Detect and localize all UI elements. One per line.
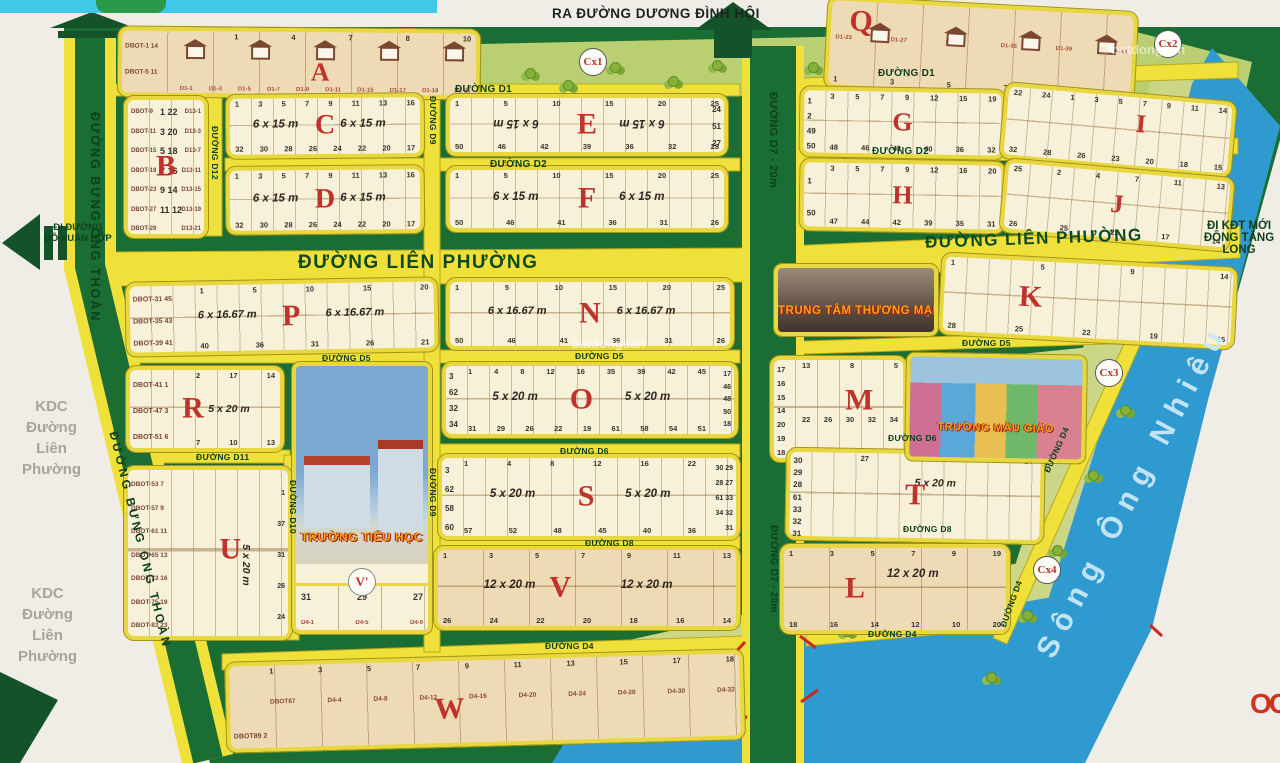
road-label-d2: ĐƯỜNG D2 — [872, 146, 929, 157]
block-U-right-numbers: 1 37 31 26 24 — [277, 478, 285, 633]
block-U-dim: 5 x 20 m — [240, 544, 252, 585]
tree-icon — [525, 68, 536, 79]
block-Vp-letter: V' — [348, 568, 376, 596]
house-icon — [251, 46, 270, 60]
road-label-d7: ĐƯỜNG D7 - 20m — [768, 525, 779, 613]
tree-icon — [1022, 610, 1033, 621]
block-E-dim: 6 x 15 m — [619, 117, 664, 129]
block-A: DBOT-1 14 DBOT-5 11 1 4 7 8 10 D1-1 D1-3… — [118, 26, 481, 99]
house-icon — [870, 28, 890, 43]
block-E-numbers-bottom: 50 46 42 39 36 32 28 — [455, 142, 719, 151]
kdc-label: KDC Đường Liên Phường — [22, 396, 81, 480]
block-D-dim: 6 x 15 m — [253, 192, 299, 204]
park-cx4-badge: Cx4 — [1033, 556, 1061, 584]
block-L-dim: 12 x 20 m — [887, 568, 939, 580]
tree-icon — [1052, 545, 1063, 556]
road-label-d6: ĐƯỜNG D6 — [560, 446, 609, 456]
house-icon — [445, 47, 464, 61]
block-R-numbers-bottom: 7 10 13 — [196, 438, 275, 447]
road-label-d5: ĐƯỜNG D5 — [962, 338, 1011, 348]
block-V-numbers-bottom: 26 24 22 20 18 16 14 — [443, 616, 731, 625]
block-V: 1 3 5 7 9 11 13 12 x 20 m 12 x 20 m V 26… — [434, 546, 740, 630]
block-D-numbers-bottom: 32 30 28 26 24 22 20 17 — [235, 219, 415, 230]
block-E-letter: E — [577, 107, 597, 141]
block-H: 1 50 3 5 7 9 12 16 20 H 47 44 42 39 35 3… — [799, 158, 1005, 234]
block-N-numbers-top: 1 5 10 15 20 25 — [455, 283, 725, 292]
block-D-dim: 6 x 15 m — [340, 191, 386, 203]
block-L-letter: L — [845, 571, 865, 605]
block-S: 3 62 58 60 30 29 28 27 61 33 34 32 31 1 … — [438, 454, 740, 540]
block-S-dim: 5 x 20 m — [625, 488, 670, 500]
block-I-letter: I — [1135, 109, 1148, 140]
road-label-d7: ĐƯỜNG D7 - 20m — [767, 92, 779, 188]
watermark: ⌂ batdongsan — [1100, 42, 1185, 57]
block-O-left-numbers: 3 62 32 34 — [449, 369, 458, 433]
road-label-d4: ĐƯỜNG D4 — [868, 629, 917, 639]
block-O: 3 62 32 34 17 46 48 50 18 1 4 8 12 16 35… — [442, 362, 738, 438]
block-V-dim: 12 x 20 m — [621, 579, 673, 591]
block-S-left-numbers: 3 62 58 60 — [445, 461, 454, 537]
tree-icon — [1088, 470, 1099, 481]
block-M-letter: M — [845, 383, 873, 417]
block-C-dim: 6 x 15 m — [253, 118, 299, 130]
block-O-numbers-top: 1 4 8 12 16 35 39 42 45 — [468, 367, 706, 376]
block-P-numbers-top: 1 5 10 15 20 — [199, 282, 428, 295]
road-label-d2: ĐƯỜNG D2 — [490, 159, 547, 170]
corner-logo-partial: OO — [1250, 688, 1280, 720]
block-L-numbers-bottom: 18 16 14 12 10 20 — [789, 620, 1001, 629]
exit-label-duong-dinh-hoi: RA ĐƯỜNG DƯƠNG ĐÌNH HỘI — [552, 6, 760, 21]
block-H-numbers-top: 3 5 7 9 12 16 20 — [830, 164, 996, 176]
block-L-numbers-top: 1 3 5 7 9 19 — [789, 549, 1001, 558]
block-P-dim: 6 x 16.67 m — [198, 309, 257, 322]
road-label-d1: ĐƯỜNG D1 — [455, 84, 512, 95]
commercial-center-label: TRUNG TÂM THƯƠNG MẠI — [778, 305, 934, 317]
road-label-d11: ĐƯỜNG D11 — [196, 452, 249, 462]
block-E-dim: 6 x 15 m — [493, 117, 538, 129]
block-S-letter: S — [578, 479, 595, 513]
block-W: 1 3 5 7 9 11 13 15 17 18 DBOT87 D4-4 D4-… — [225, 649, 745, 753]
house-icon — [946, 32, 966, 47]
block-G-left-numbers: 1 2 49 50 — [806, 93, 816, 153]
block-O-dim: 5 x 20 m — [492, 391, 537, 403]
block-P-numbers-bottom: 40 36 31 26 21 — [200, 337, 429, 350]
road-label-d1: ĐƯỜNG D1 — [878, 68, 935, 79]
road-label-d8: ĐƯỜNG D8 — [585, 538, 634, 548]
block-F-numbers-bottom: 50 46 41 36 31 26 — [455, 218, 719, 227]
block-N-dim: 6 x 16.67 m — [617, 305, 676, 317]
school-building-icon — [378, 440, 423, 539]
block-B-letter: B — [156, 149, 176, 183]
block-A-left-labels: DBOT-1 14 DBOT-5 11 — [125, 33, 158, 85]
watermark-logo-icon: ⌂ — [1100, 42, 1108, 57]
block-G-letter: G — [892, 107, 913, 137]
block-B-right-labels: D13-1 D13-3 D13-7 D13-11 D13-15 D13-19 D… — [181, 103, 201, 240]
exit-label-do-xuan-hop: ĐI ĐƯỜNG ĐỖ XUÂN HỢP — [44, 222, 112, 244]
tree-icon — [808, 62, 819, 73]
block-S-numbers-top: 1 4 8 12 16 22 — [464, 459, 696, 468]
block-D-letter: D — [315, 183, 336, 215]
block-Vp-plot-ids: D4-1 D4-5 D4-9 — [301, 620, 423, 626]
block-J-letter: J — [1109, 189, 1125, 220]
block-D-numbers-top: 1 3 5 7 9 11 13 16 — [235, 170, 415, 181]
block-P-letter: P — [282, 299, 301, 333]
block-S-right-numbers: 30 29 28 27 61 33 34 32 31 — [715, 461, 733, 536]
block-C-letter: C — [315, 109, 336, 141]
kdc-label: KDC Đường Liên Phường — [18, 583, 77, 667]
subdivision-map: DBOT-1 14 DBOT-5 11 1 4 7 8 10 D1-1 D1-3… — [0, 0, 1280, 763]
house-icon — [186, 45, 205, 59]
block-R-dim: 5 x 20 m — [208, 403, 249, 415]
block-C-numbers-top: 1 3 5 7 9 11 13 16 — [235, 98, 415, 109]
block-M-left-numbers: 17 16 15 14 20 19 18 — [777, 363, 785, 460]
block-F-dim: 6 x 15 m — [493, 191, 538, 203]
road-label-d5: ĐƯỜNG D5 — [575, 351, 624, 361]
block-C: 1 3 5 7 9 11 13 16 6 x 15 m 6 x 15 m C 3… — [226, 93, 425, 159]
block-P: DBOT-31 45 DBOT-35 43 DBOT-39 41 1 5 10 … — [125, 277, 438, 356]
block-S-numbers-bottom: 57 52 48 45 40 36 — [464, 526, 696, 535]
primary-school-card: TRƯỜNG TIỂU HỌC 31 29 27 D4-1 D4-5 D4-9 … — [292, 362, 432, 634]
road-label-d10: ĐƯỜNG D10 — [288, 480, 298, 534]
block-F: 1 5 10 15 20 25 6 x 15 m 6 x 15 m F 50 4… — [446, 166, 728, 232]
road-label-bung-ong-thoan: ĐƯỜNG BƯNG ÔNG THOÀN — [88, 112, 102, 322]
block-W-letter: W — [434, 692, 465, 727]
block-O-dim: 5 x 20 m — [625, 391, 670, 403]
block-U-letter: U — [220, 532, 242, 566]
block-O-letter: O — [570, 382, 593, 416]
block-G-numbers-top: 3 5 7 9 12 15 19 — [830, 92, 996, 104]
block-M-numbers-top: 13 8 5 — [802, 361, 898, 370]
photo-edge-blob — [96, 0, 166, 13]
watermark-logo-icon: ⌂ — [560, 336, 568, 351]
block-R-numbers-top: 2 17 14 — [196, 371, 275, 380]
block-N-dim: 6 x 16.67 m — [488, 305, 547, 317]
block-L: 1 3 5 7 9 19 12 x 20 m L 18 16 14 12 10 … — [780, 544, 1010, 634]
block-F-d: 6 x 15 m — [619, 191, 664, 203]
tree-icon — [712, 60, 723, 71]
block-V-numbers-top: 1 3 5 7 9 11 13 — [443, 551, 731, 560]
block-T-letter: T — [905, 478, 926, 512]
road-label-d6: ĐƯỜNG D6 — [888, 433, 937, 443]
park-cx1-badge: Cx1 — [579, 48, 607, 76]
block-K: 1 5 9 14 K 28 25 22 19 15 — [938, 252, 1238, 349]
school-building-icon — [304, 456, 370, 528]
block-D: 1 3 5 7 9 11 13 16 6 x 15 m 6 x 15 m D 3… — [226, 165, 425, 235]
road-label-lien-phuong: ĐƯỜNG LIÊN PHƯỜNG — [298, 252, 538, 274]
block-P-left-labels: DBOT-31 45 DBOT-35 43 DBOT-39 41 — [132, 289, 172, 356]
block-P-dim: 6 x 16.67 m — [325, 307, 384, 320]
photo-edge-strip — [0, 0, 437, 13]
block-R-left-labels: DBOT-41 1 DBOT-47 3 DBOT-51 6 — [133, 373, 168, 451]
block-R: DBOT-41 1 DBOT-47 3 DBOT-51 6 2 17 14 R … — [126, 366, 284, 452]
block-W-left-labels: DBOT89 2 — [234, 733, 268, 741]
tree-icon — [668, 76, 679, 87]
exit-label-dong-tang-long: ĐI KĐT MỚI ĐÔNG TĂNG LONG — [1198, 220, 1280, 256]
tree-icon — [1120, 405, 1131, 416]
block-B: DBOT-9 DBOT-11 DBOT-15 DBOT-19 DBOT-23 D… — [124, 96, 208, 238]
road-label-d9: ĐƯỜNG D9 — [428, 468, 438, 517]
block-V-dim: 12 x 20 m — [484, 579, 536, 591]
tree-icon — [610, 62, 621, 73]
block-K-letter: K — [1018, 280, 1043, 315]
block-O-right-numbers: 17 46 48 50 18 — [723, 369, 731, 432]
tree-icon — [563, 80, 574, 91]
house-icon — [1021, 36, 1041, 51]
tree-icon — [986, 672, 997, 683]
block-O-numbers-bottom: 31 29 26 22 19 61 58 54 51 — [468, 424, 706, 433]
block-R-letter: R — [182, 391, 204, 425]
block-Q-houses — [870, 28, 1116, 55]
block-N-letter: N — [579, 296, 601, 330]
block-M: 17 16 15 14 20 19 18 13 8 5 22 26 30 32 … — [770, 356, 907, 462]
block-S-dim: 5 x 20 m — [490, 488, 535, 500]
block-V-letter: V — [549, 570, 571, 604]
road-label-d12: ĐƯỜNG D12 — [210, 126, 220, 180]
block-H-numbers-bottom: 47 44 42 39 35 31 — [829, 217, 995, 229]
block-F-numbers-top: 1 5 10 15 20 25 — [455, 171, 719, 180]
road-label-d9: ĐƯỜNG D9 — [428, 96, 438, 145]
block-W-plot-ids: DBOT87 D4-4 D4-8 D4-12 D4-16 D4-20 D4-24… — [270, 686, 735, 705]
block-H-letter: H — [892, 180, 913, 210]
primary-school-label: TRƯỜNG TIỂU HỌC — [296, 530, 428, 544]
block-E: 1 5 10 15 20 25 6 x 15 m 6 x 15 m E 24 5… — [446, 94, 728, 156]
block-T-left-numbers: 30 29 28 61 33 32 31 — [792, 455, 802, 541]
road-label-d5: ĐƯỜNG D5 — [322, 353, 371, 363]
block-B-left-labels: DBOT-9 DBOT-11 DBOT-15 DBOT-19 DBOT-23 D… — [131, 103, 156, 240]
block-C-dim: 6 x 15 m — [340, 117, 386, 129]
block-A-letter: A — [311, 57, 330, 87]
park-cx3-badge: Cx3 — [1095, 359, 1123, 387]
block-F-letter: F — [578, 181, 596, 215]
house-icon — [380, 47, 399, 61]
watermark: ⌂ batdongsan — [560, 336, 645, 351]
block-C-numbers-bottom: 32 30 28 26 24 22 20 17 — [235, 143, 415, 154]
road-label-d8: ĐƯỜNG D8 — [903, 524, 952, 534]
commercial-center-card: TRUNG TÂM THƯƠNG MẠI — [774, 264, 938, 336]
block-H-left-numbers: 1 50 — [806, 165, 816, 229]
road-label-d4: ĐƯỜNG D4 — [545, 641, 594, 651]
